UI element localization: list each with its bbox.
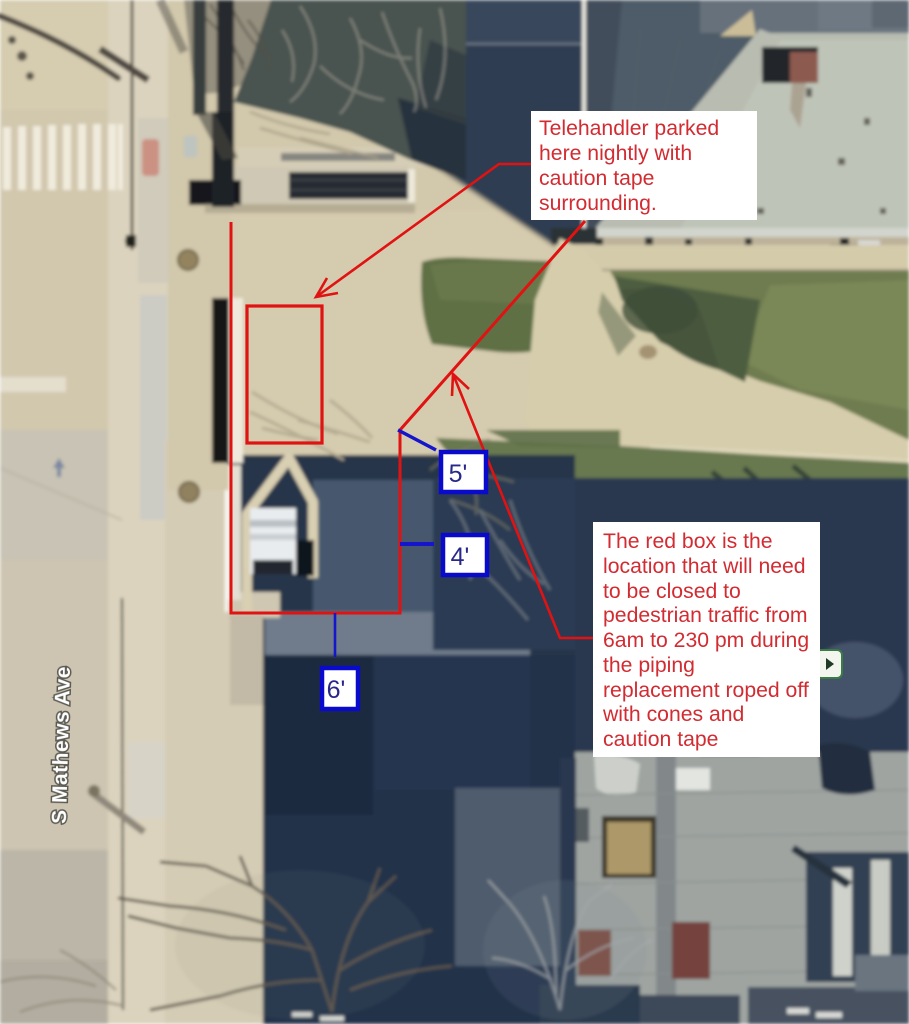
svg-text:with cones and: with cones and — [602, 703, 744, 726]
svg-text:here nightly with: here nightly with — [539, 142, 692, 165]
svg-text:caution tape: caution tape — [603, 728, 718, 751]
svg-text:6am to 230 pm during: 6am to 230 pm during — [603, 629, 809, 652]
svg-text:the piping: the piping — [603, 654, 695, 677]
svg-text:location that will need: location that will need — [603, 555, 806, 578]
svg-text:4': 4' — [451, 543, 470, 571]
svg-text:replacement roped off: replacement roped off — [603, 679, 809, 702]
svg-text:6': 6' — [327, 676, 346, 704]
svg-text:surrounding.: surrounding. — [539, 192, 657, 215]
svg-text:S Mathews Ave: S Mathews Ave — [48, 666, 75, 824]
svg-text:The red box is the: The red box is the — [603, 530, 773, 553]
svg-text:caution tape: caution tape — [539, 167, 654, 190]
svg-text:5': 5' — [449, 460, 468, 488]
svg-text:Telehandler parked: Telehandler parked — [539, 117, 719, 140]
svg-text:pedestrian traffic from: pedestrian traffic from — [603, 604, 808, 627]
svg-text:to be closed to: to be closed to — [603, 580, 741, 603]
